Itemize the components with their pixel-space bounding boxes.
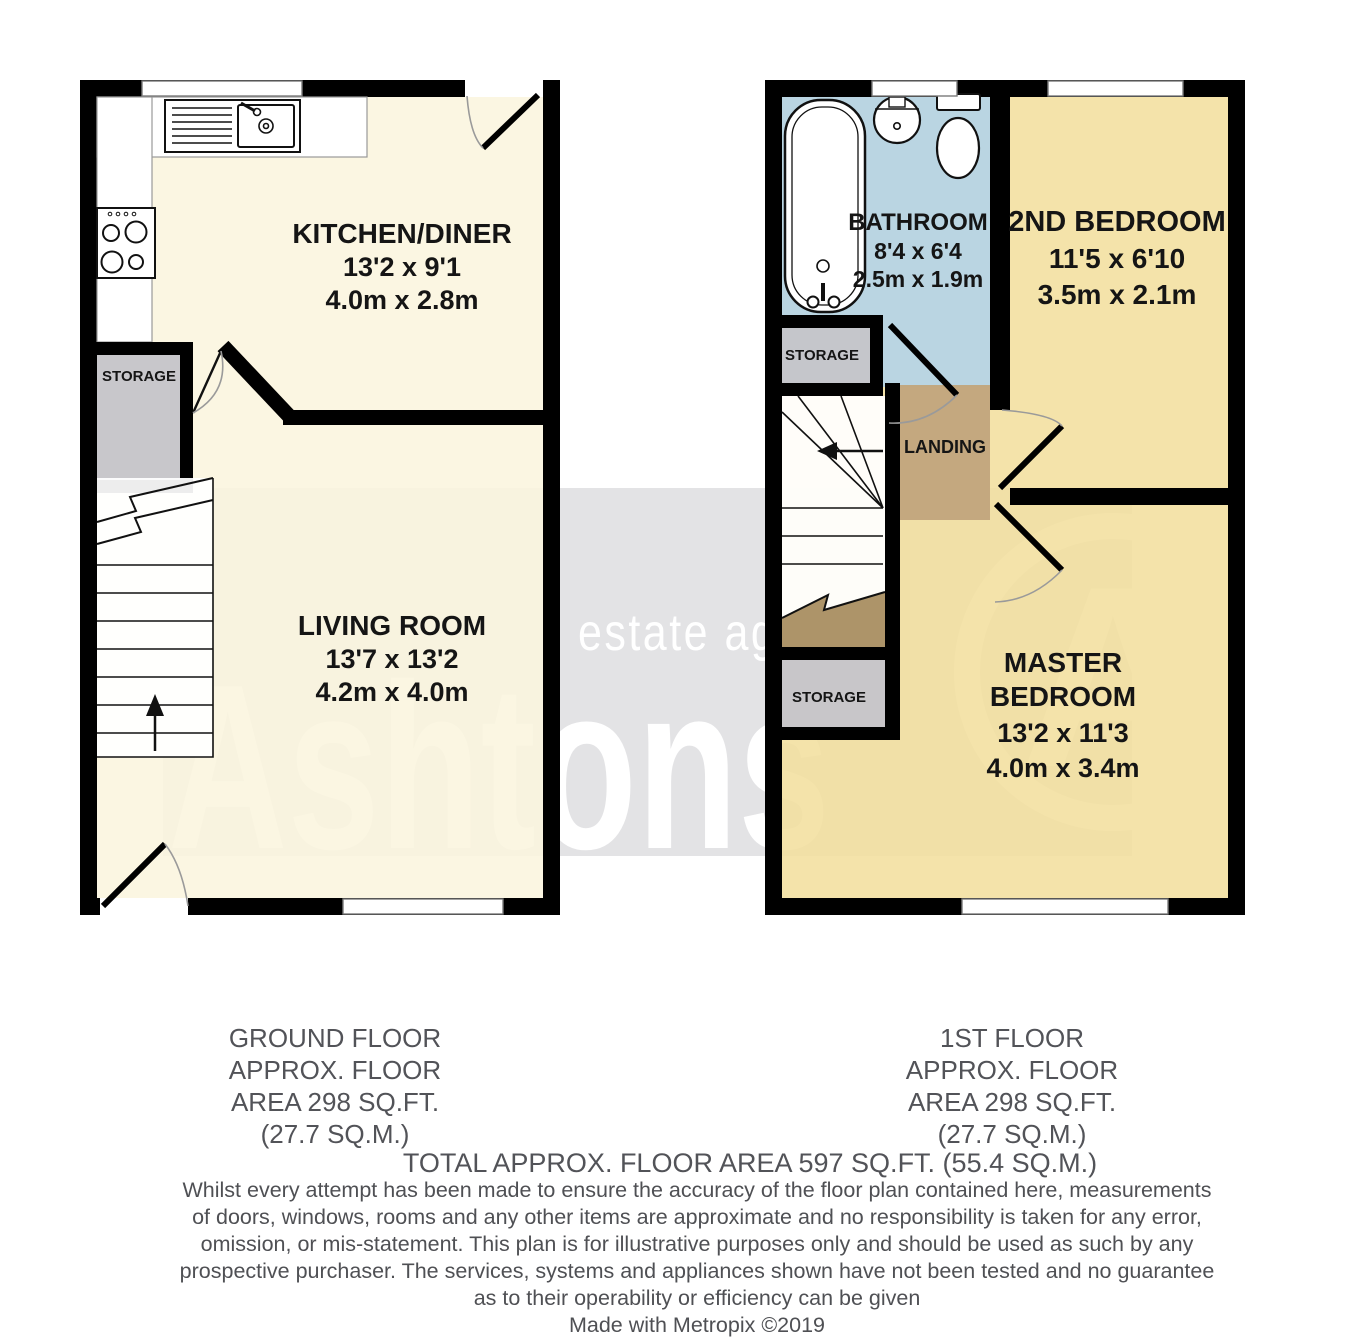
- master-bedroom-window: [962, 899, 1168, 914]
- bathroom-size-metric: 2.5m x 1.9m: [853, 266, 983, 292]
- first-floor-caption-line: (27.7 SQ.M.): [792, 1118, 1232, 1150]
- living-room-name: LIVING ROOM: [298, 610, 486, 641]
- bathroom-sink-icon: [874, 97, 920, 143]
- disclaimer-block: Whilst every attempt has been made to en…: [47, 1177, 1347, 1339]
- master-bedroom-name-2: BEDROOM: [990, 681, 1136, 712]
- metropix-credit: Made with Metropix ©2019: [47, 1312, 1347, 1339]
- first-floor-caption: 1ST FLOOR APPROX. FLOOR AREA 298 SQ.FT. …: [792, 1022, 1232, 1150]
- kitchen-size-metric: 4.0m x 2.8m: [325, 285, 478, 315]
- ground-stairs: [97, 478, 213, 757]
- master-bedroom-name-1: MASTER: [1004, 647, 1122, 678]
- second-bedroom-size-imperial: 11'5 x 6'10: [1049, 243, 1185, 274]
- first-floor-plan: BATHROOM 8'4 x 6'4 2.5m x 1.9m 2ND BEDRO…: [765, 80, 1245, 915]
- ground-floor-caption: GROUND FLOOR APPROX. FLOOR AREA 298 SQ.F…: [115, 1022, 555, 1150]
- kitchen-hob-icon: [97, 208, 155, 278]
- ground-floor-plan: KITCHEN/DINER 13'2 x 9'1 4.0m x 2.8m STO…: [80, 80, 560, 915]
- second-bedroom-size-metric: 3.5m x 2.1m: [1038, 279, 1197, 310]
- first-floor-caption-line: APPROX. FLOOR: [792, 1054, 1232, 1086]
- kitchen-size-imperial: 13'2 x 9'1: [343, 252, 461, 282]
- ground-storage-label: STORAGE: [102, 368, 176, 385]
- living-room-size-metric: 4.2m x 4.0m: [315, 677, 468, 707]
- bathroom-window: [872, 81, 957, 96]
- toilet-icon: [937, 94, 980, 178]
- disclaimer-line: as to their operability or efficiency ca…: [47, 1285, 1347, 1312]
- bathroom-name: BATHROOM: [848, 209, 988, 236]
- kitchen-window: [142, 81, 302, 96]
- upper-storage-label: STORAGE: [785, 347, 859, 364]
- living-room-size-imperial: 13'7 x 13'2: [326, 644, 459, 674]
- master-bedroom-size-metric: 4.0m x 3.4m: [986, 753, 1139, 783]
- ground-floor-caption-line: GROUND FLOOR: [115, 1022, 555, 1054]
- ground-floor-caption-line: AREA 298 SQ.FT.: [115, 1086, 555, 1118]
- ground-floor-caption-line: APPROX. FLOOR: [115, 1054, 555, 1086]
- second-bedroom-name: 2ND BEDROOM: [1008, 206, 1226, 238]
- second-bedroom-window: [1048, 81, 1183, 96]
- disclaimer-line: prospective purchaser. The services, sys…: [47, 1258, 1347, 1285]
- disclaimer-line: Whilst every attempt has been made to en…: [47, 1177, 1347, 1204]
- kitchen-sink-icon: [165, 100, 300, 152]
- living-room-label: LIVING ROOM 13'7 x 13'2 4.2m x 4.0m: [298, 610, 486, 707]
- living-room-window: [343, 899, 503, 914]
- kitchen-name: KITCHEN/DINER: [292, 218, 511, 249]
- total-area-line: TOTAL APPROX. FLOOR AREA 597 SQ.FT. (55.…: [150, 1148, 1350, 1179]
- first-floor-caption-line: AREA 298 SQ.FT.: [792, 1086, 1232, 1118]
- bathroom-size-imperial: 8'4 x 6'4: [874, 238, 962, 264]
- ground-floor-caption-line: (27.7 SQ.M.): [115, 1118, 555, 1150]
- first-floor-stairs: [782, 383, 900, 660]
- lower-storage-label: STORAGE: [792, 689, 866, 706]
- first-floor-caption-line: 1ST FLOOR: [792, 1022, 1232, 1054]
- landing-label: LANDING: [904, 437, 986, 457]
- disclaimer-line: omission, or mis-statement. This plan is…: [47, 1231, 1347, 1258]
- master-bedroom-size-imperial: 13'2 x 11'3: [997, 718, 1128, 748]
- disclaimer-line: of doors, windows, rooms and any other i…: [47, 1204, 1347, 1231]
